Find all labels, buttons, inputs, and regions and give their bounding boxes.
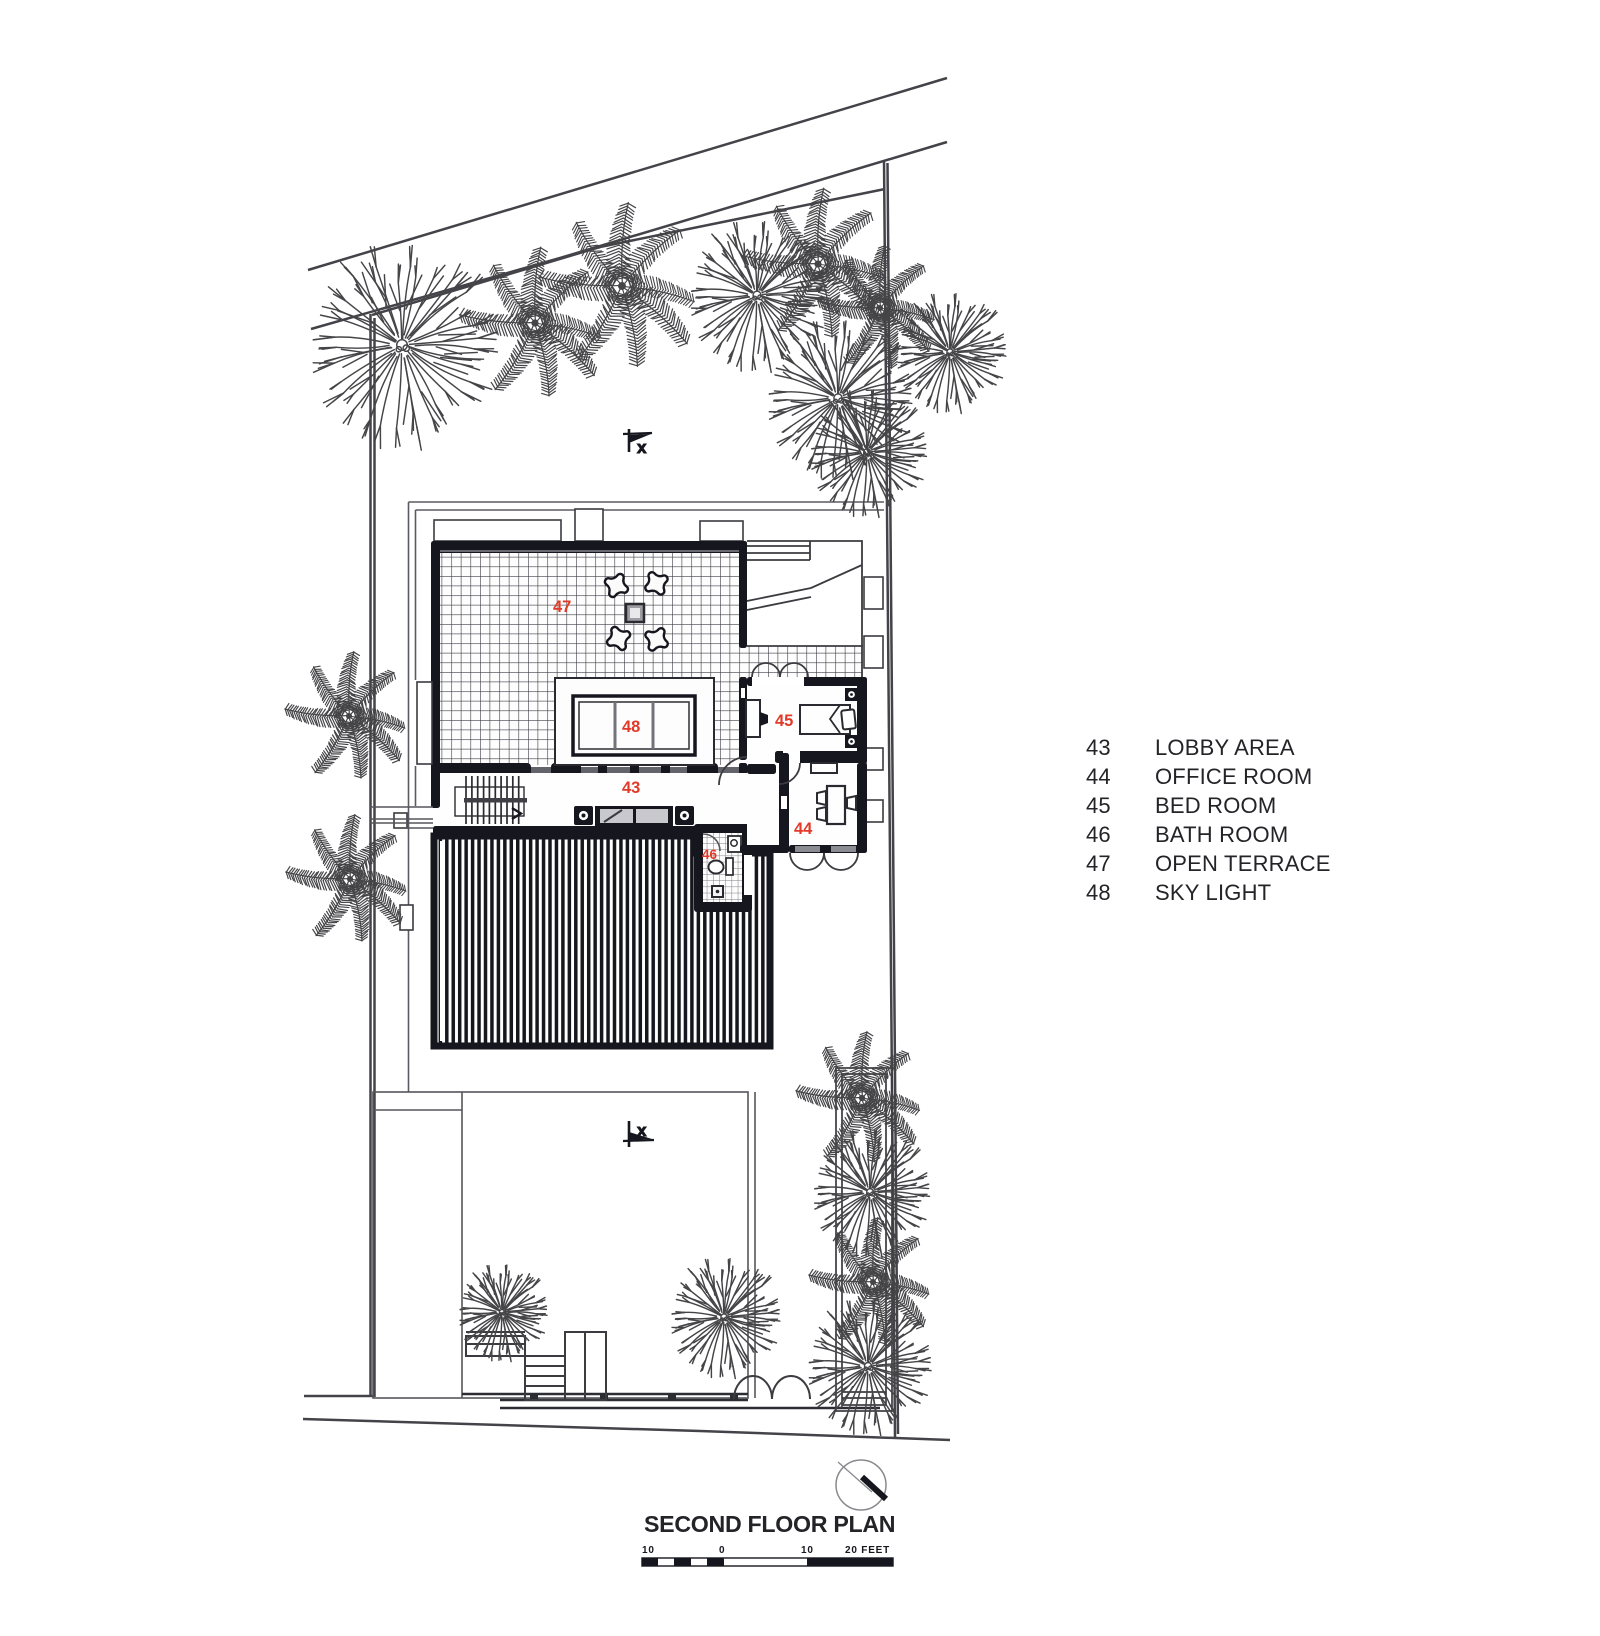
svg-text:44: 44 xyxy=(1086,764,1111,789)
svg-text:43: 43 xyxy=(622,779,640,797)
svg-text:LOBBY AREA: LOBBY AREA xyxy=(1155,735,1295,760)
svg-text:48: 48 xyxy=(1086,880,1111,905)
svg-text:46: 46 xyxy=(1086,822,1111,847)
svg-text:OFFICE ROOM: OFFICE ROOM xyxy=(1155,764,1312,789)
svg-text:x: x xyxy=(637,1121,647,1140)
svg-text:43: 43 xyxy=(1086,735,1111,760)
svg-text:0: 0 xyxy=(719,1545,725,1556)
svg-text:48: 48 xyxy=(622,718,640,736)
svg-text:x: x xyxy=(637,438,647,457)
svg-text:45: 45 xyxy=(775,712,793,730)
svg-text:BATH ROOM: BATH ROOM xyxy=(1155,822,1288,847)
svg-text:44: 44 xyxy=(794,820,813,838)
svg-text:10: 10 xyxy=(801,1545,814,1556)
svg-text:10: 10 xyxy=(642,1545,655,1556)
svg-text:46: 46 xyxy=(702,847,718,862)
svg-text:45: 45 xyxy=(1086,793,1111,818)
svg-text:47: 47 xyxy=(553,598,571,616)
svg-text:SKY LIGHT: SKY LIGHT xyxy=(1155,880,1271,905)
svg-text:47: 47 xyxy=(1086,851,1111,876)
svg-text:SECOND FLOOR PLAN: SECOND FLOOR PLAN xyxy=(644,1511,895,1537)
svg-text:BED ROOM: BED ROOM xyxy=(1155,793,1276,818)
svg-text:OPEN TERRACE: OPEN TERRACE xyxy=(1155,851,1331,876)
svg-text:20 FEET: 20 FEET xyxy=(845,1545,890,1556)
